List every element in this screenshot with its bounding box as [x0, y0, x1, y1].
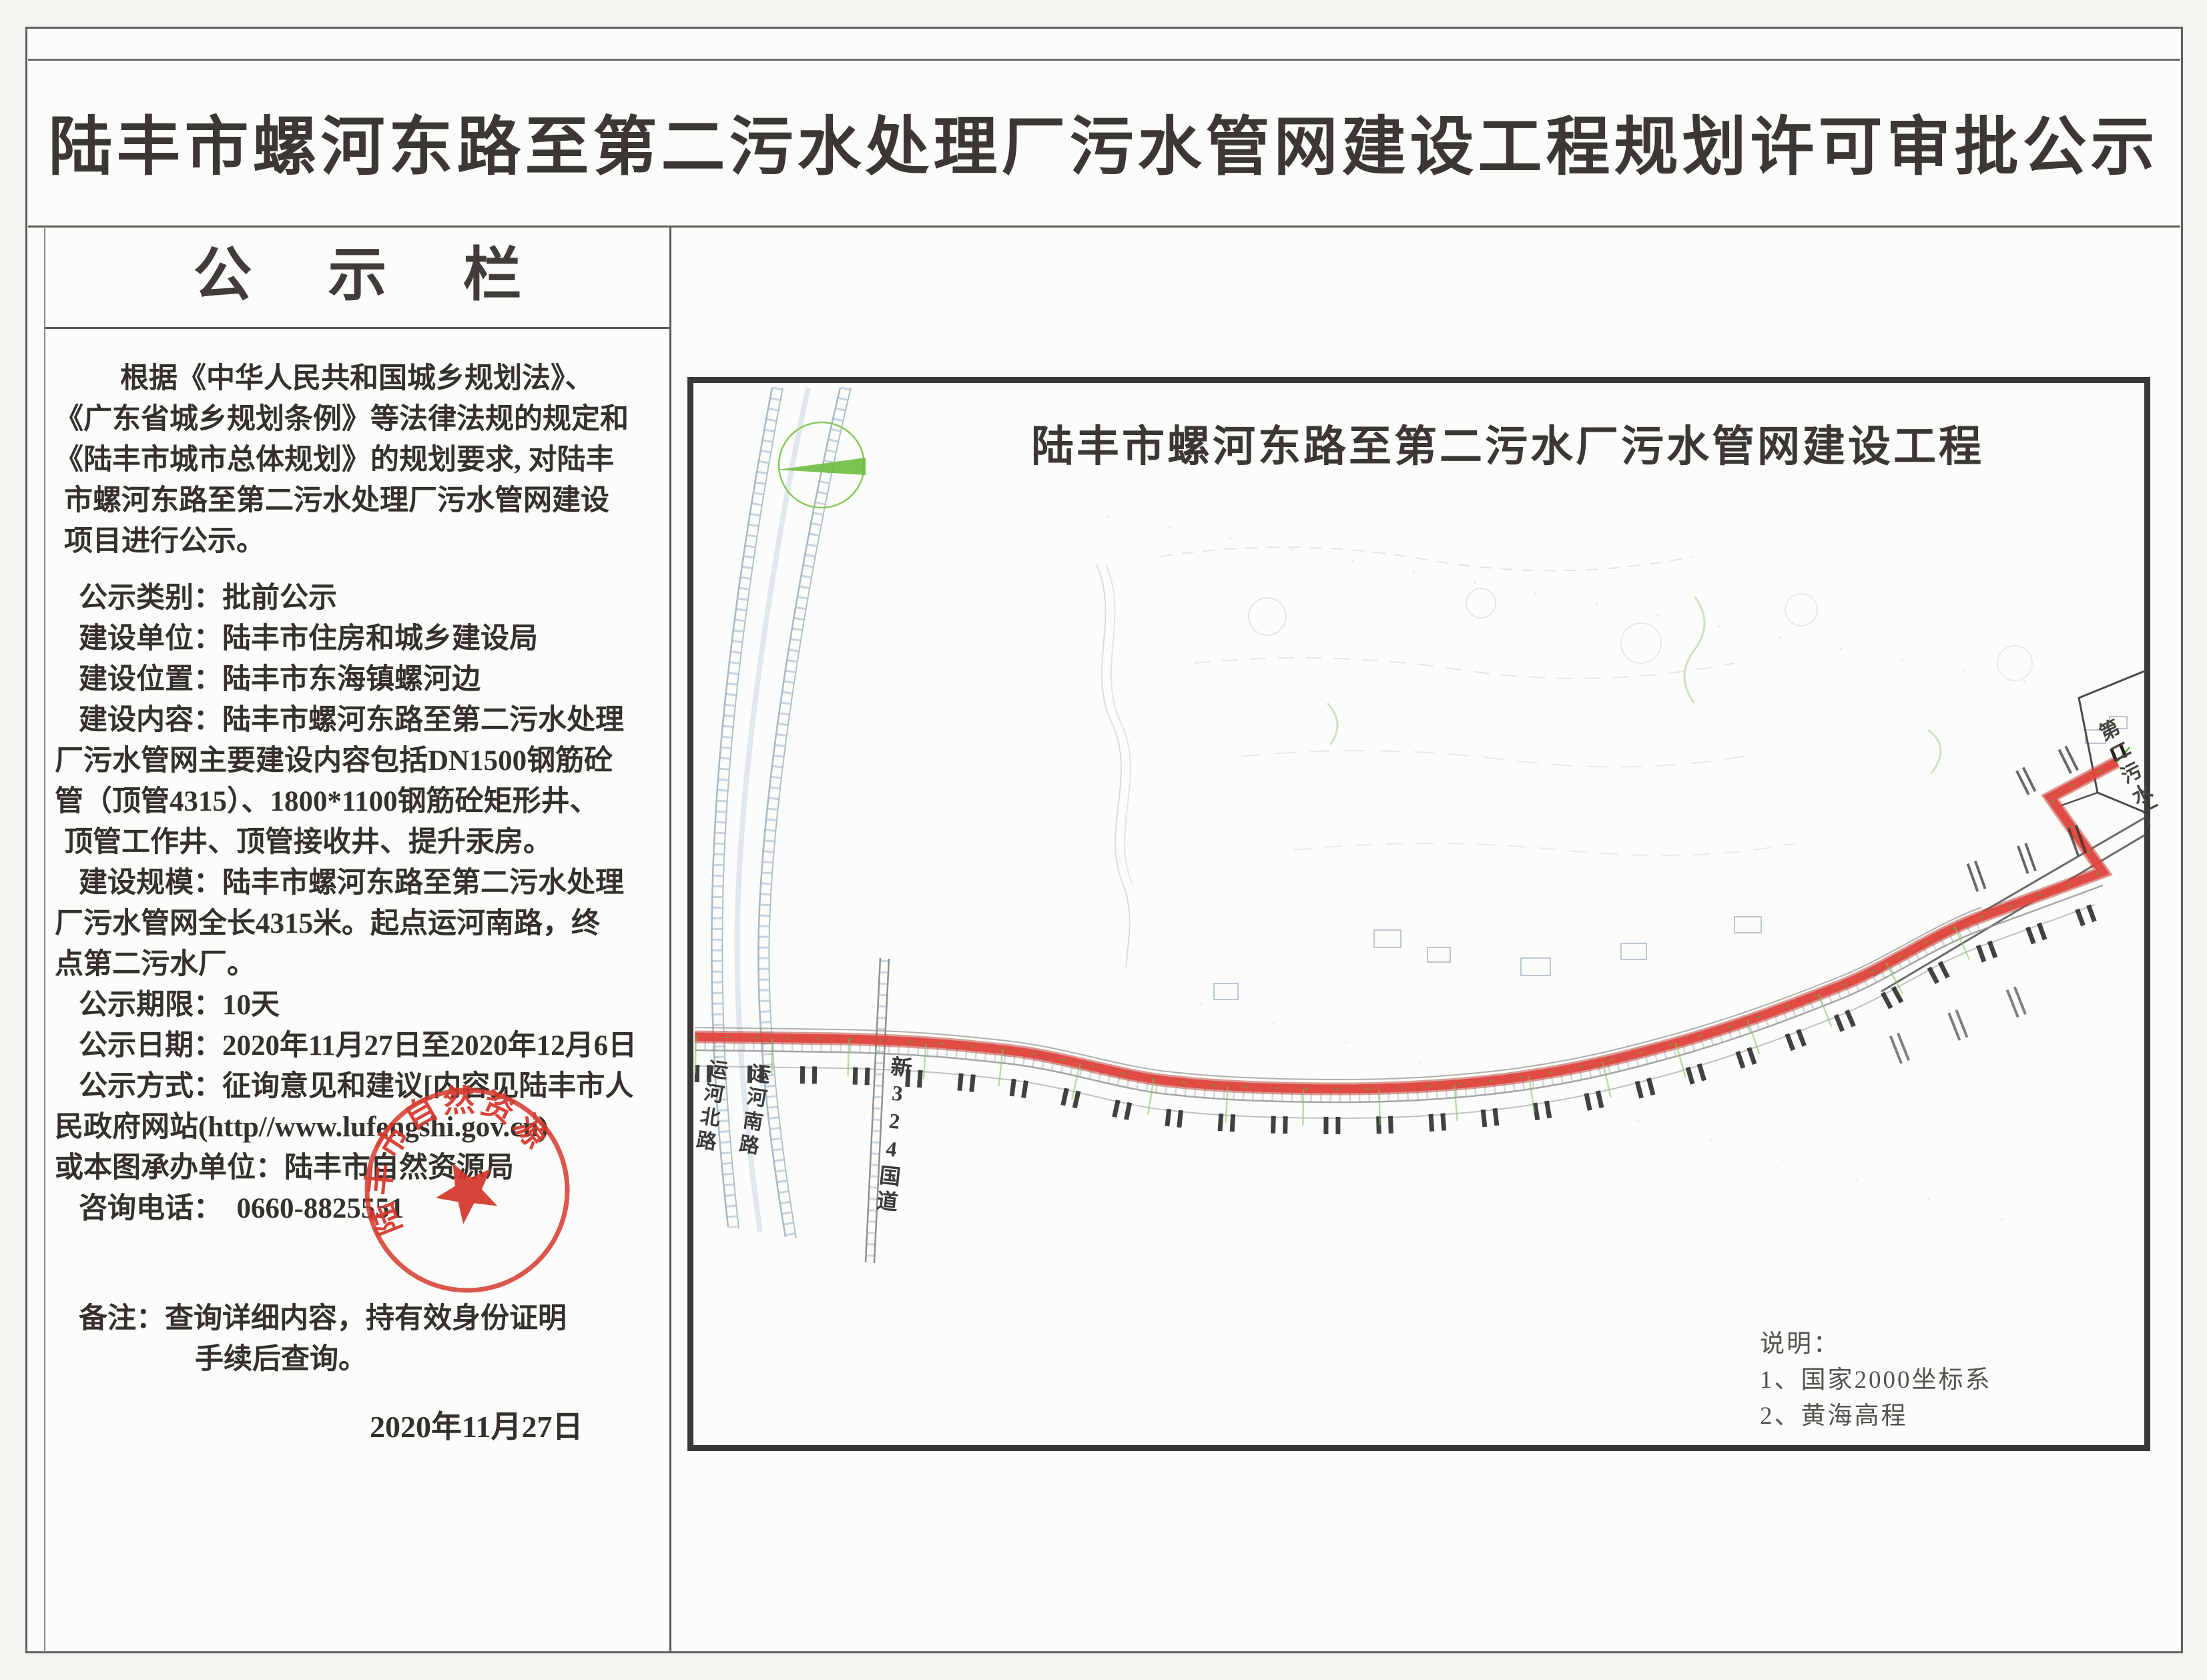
svg-text:陆丰市自然资源局: 陆丰市自然资源局 — [352, 1076, 561, 1257]
notice-line: 建设位置：陆丰市东海镇螺河边 — [53, 659, 657, 700]
map-legend: 说明： 1、国家2000坐标系 2、黄海高程 — [1760, 1326, 1992, 1434]
notice-remarks: 备注：查询详细内容，持有效身份证明手续后查询。 — [53, 1298, 657, 1380]
notice-line: 管（顶管4315）、1800*1100钢筋砼矩形井、 — [53, 781, 657, 822]
panel-divider — [669, 226, 671, 1652]
legend-item: 2、黄海高程 — [1760, 1398, 1992, 1434]
notice-board-heading: 公 示 栏 — [45, 226, 669, 329]
notice-line: 公示日期：2020年11月27日至2020年12月6日 — [53, 1025, 657, 1066]
notice-line: 项目进行公示。 — [53, 521, 657, 562]
official-seal-icon: 陆丰市自然资源局 — [352, 1076, 582, 1305]
notice-line: 建设单位：陆丰市住房和城乡建设局 — [53, 618, 657, 659]
page-title: 陆丰市螺河东路至第二污水处理厂污水管网建设工程规划许可审批公示 — [40, 95, 2167, 187]
map-drawing — [693, 383, 2144, 1445]
notice-board-panel: 公 示 栏 根据《中华人民共和国城乡规划法》、《广东省城乡规划条例》等法律法规的… — [44, 226, 669, 1652]
map-title: 陆丰市螺河东路至第二污水厂污水管网建设工程 — [920, 412, 2095, 474]
notice-line: 厂污水管网全长4315米。起点运河南路，终 — [53, 903, 657, 944]
notice-line: 建设内容：陆丰市螺河东路至第二污水处理 — [53, 700, 657, 741]
legend-item: 1、国家2000坐标系 — [1760, 1362, 1992, 1398]
pipeline-route-line — [695, 745, 2130, 1089]
notice-date: 2020年11月27日 — [53, 1406, 657, 1447]
notice-intro: 根据《中华人民共和国城乡规划法》、《广东省城乡规划条例》等法律法规的规定和《陆丰… — [53, 358, 657, 562]
legend-heading: 说明： — [1760, 1326, 1992, 1362]
notice-line: 顶管工作井、顶管接收井、提升汞房。 — [53, 822, 657, 863]
notice-page: 陆丰市螺河东路至第二污水处理厂污水管网建设工程规划许可审批公示 公 示 栏 根据… — [0, 0, 2207, 1680]
map-buildings — [1214, 717, 2127, 999]
notice-line: 厂污水管网主要建设内容包括DN1500钢筋砼 — [53, 741, 657, 781]
seal-star-icon — [425, 1148, 508, 1230]
plan-map: 陆丰市螺河东路至第二污水厂污水管网建设工程 运河北路 运河南路 新324国道 第… — [687, 377, 2150, 1451]
notice-line: 公示期限：10天 — [53, 985, 657, 1025]
top-rule — [28, 59, 2180, 61]
map-background-linework — [1096, 516, 2108, 1237]
notice-line: 《广东省城乡规划条例》等法律法规的规定和 — [53, 399, 657, 440]
notice-line: 根据《中华人民共和国城乡规划法》、 — [53, 358, 657, 399]
notice-line: 公示类别：批前公示 — [53, 578, 657, 618]
notice-line: 点第二污水厂。 — [53, 944, 657, 985]
notice-line: 手续后查询。 — [53, 1339, 657, 1380]
notice-line: 《陆丰市城市总体规划》的规划要求, 对陆丰 — [53, 440, 657, 480]
notice-line: 市螺河东路至第二污水处理厂污水管网建设 — [53, 480, 657, 521]
canal-roads — [711, 388, 851, 1238]
notice-line: 建设规模：陆丰市螺河东路至第二污水处理 — [53, 863, 657, 903]
seal-text: 陆丰市自然资源局 — [352, 1076, 561, 1257]
